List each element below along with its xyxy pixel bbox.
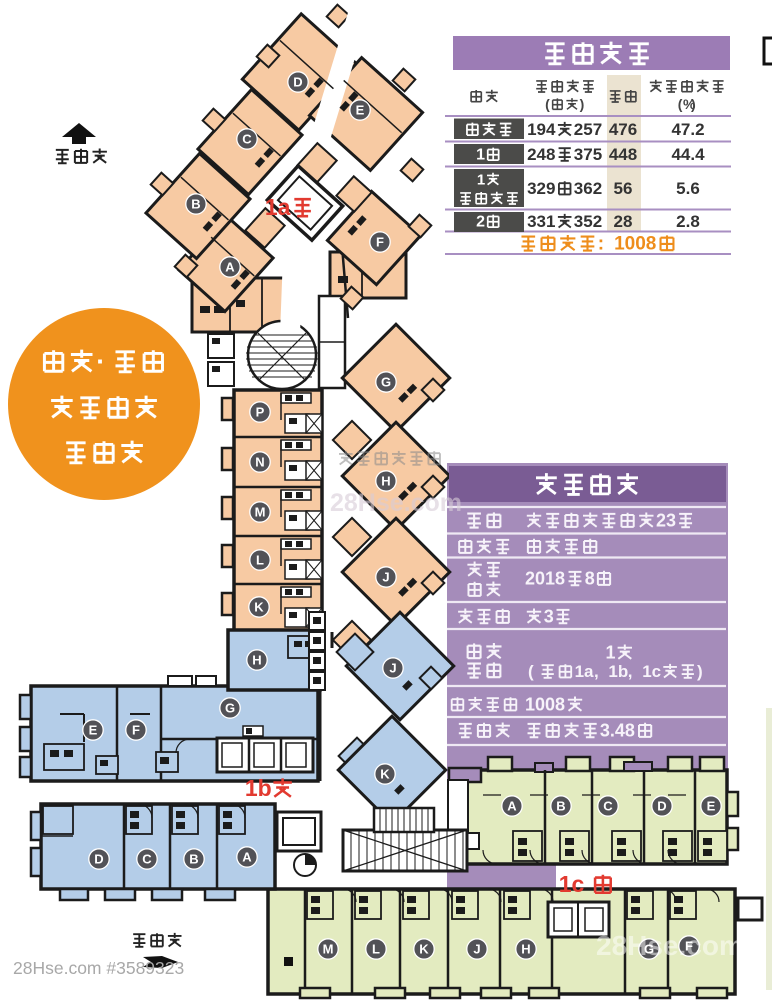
svg-text:448: 448 — [609, 145, 637, 164]
svg-text:B: B — [191, 197, 200, 212]
svg-text:J: J — [473, 942, 480, 957]
svg-text:M: M — [323, 942, 334, 957]
svg-text:362: 362 — [574, 179, 602, 198]
svg-text:G: G — [381, 375, 391, 390]
svg-text:28: 28 — [614, 212, 633, 231]
svg-text:2: 2 — [476, 214, 485, 231]
svg-text:D: D — [657, 799, 666, 814]
svg-text:1: 1 — [476, 147, 485, 164]
svg-text:1a: 1a — [265, 194, 291, 220]
svg-text:·: · — [96, 347, 105, 377]
svg-text:1: 1 — [606, 642, 616, 662]
svg-text:,: , — [628, 662, 633, 681]
svg-text:56: 56 — [614, 179, 633, 198]
svg-text::: : — [598, 234, 604, 255]
svg-text:F: F — [376, 235, 384, 250]
svg-text:1c: 1c — [642, 662, 661, 681]
svg-text:352: 352 — [574, 212, 602, 231]
svg-text:K: K — [380, 767, 390, 782]
svg-text:E: E — [707, 799, 716, 814]
svg-text:H: H — [381, 474, 390, 489]
svg-text:M: M — [255, 505, 266, 520]
svg-text:3: 3 — [544, 606, 554, 626]
svg-text:2018: 2018 — [525, 568, 565, 588]
svg-text:28Hse.com #3589323: 28Hse.com #3589323 — [13, 958, 184, 978]
svg-text:194: 194 — [527, 120, 556, 139]
svg-text:C: C — [242, 132, 252, 147]
svg-text:,: , — [594, 662, 599, 681]
svg-text:J: J — [389, 661, 396, 676]
svg-text:C: C — [142, 852, 152, 867]
svg-text:A: A — [242, 850, 252, 865]
svg-text:28Hse.com: 28Hse.com — [330, 489, 462, 517]
svg-text:8: 8 — [585, 568, 595, 588]
svg-text:329: 329 — [527, 179, 555, 198]
svg-text:): ) — [697, 662, 703, 681]
svg-text:C: C — [603, 799, 613, 814]
svg-text:(: ( — [678, 96, 683, 112]
svg-text:F: F — [132, 723, 140, 738]
svg-text:A: A — [507, 799, 517, 814]
svg-text:D: D — [293, 75, 302, 90]
svg-text:28Hse.com: 28Hse.com — [596, 930, 744, 961]
svg-text:3.48: 3.48 — [600, 720, 635, 740]
svg-text:E: E — [89, 723, 98, 738]
svg-text:23: 23 — [656, 510, 676, 530]
svg-text:N: N — [255, 455, 264, 470]
svg-text:K: K — [419, 942, 429, 957]
svg-text:1b: 1b — [245, 775, 272, 801]
svg-text:47.2: 47.2 — [671, 120, 704, 139]
svg-text:44.4: 44.4 — [671, 145, 705, 164]
svg-text:248: 248 — [527, 145, 555, 164]
svg-text:5.6: 5.6 — [676, 179, 700, 198]
svg-text:1a: 1a — [575, 662, 594, 681]
svg-text:(: ( — [545, 96, 550, 112]
svg-text:476: 476 — [609, 120, 637, 139]
svg-text:H: H — [521, 942, 530, 957]
svg-text:E: E — [356, 103, 365, 118]
svg-text:G: G — [225, 701, 235, 716]
svg-text:K: K — [254, 600, 264, 615]
svg-text:(: ( — [528, 662, 534, 681]
svg-text:2.8: 2.8 — [676, 212, 700, 231]
svg-text:1c: 1c — [559, 871, 585, 897]
svg-text:): ) — [580, 96, 585, 112]
svg-text:1008: 1008 — [614, 234, 656, 255]
svg-text:375: 375 — [574, 145, 602, 164]
svg-text:B: B — [189, 852, 198, 867]
svg-text:): ) — [691, 96, 696, 112]
svg-text:1b: 1b — [608, 662, 628, 681]
svg-text:331: 331 — [527, 212, 555, 231]
svg-text:D: D — [94, 852, 103, 867]
svg-text:1: 1 — [477, 171, 485, 188]
svg-text:J: J — [382, 570, 389, 585]
svg-text:H: H — [252, 653, 261, 668]
svg-text:1008: 1008 — [525, 694, 565, 714]
svg-text:B: B — [556, 799, 565, 814]
svg-text:L: L — [372, 942, 380, 957]
svg-text:L: L — [256, 553, 264, 568]
svg-text:A: A — [225, 260, 235, 275]
svg-text:P: P — [256, 405, 265, 420]
svg-text:257: 257 — [574, 120, 602, 139]
